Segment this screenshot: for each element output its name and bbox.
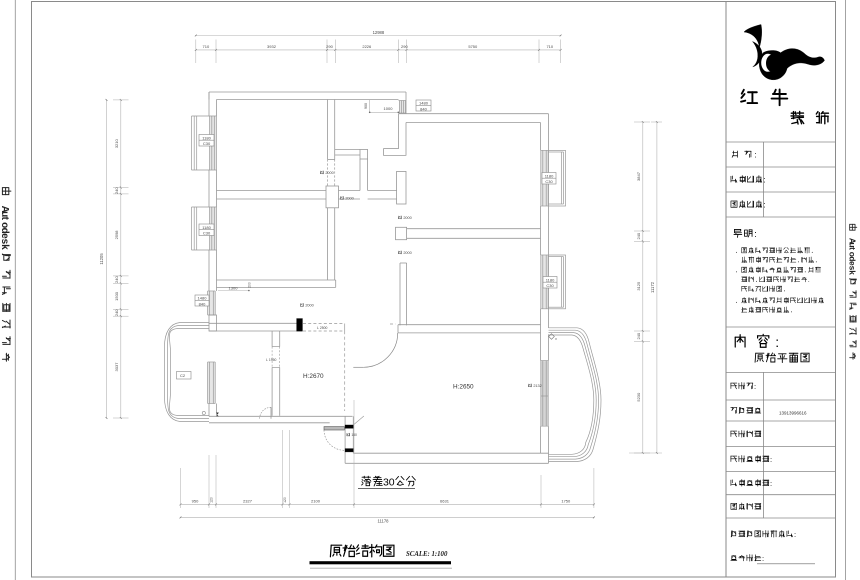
svg-text:L: L xyxy=(317,326,319,330)
svg-text:C30: C30 xyxy=(545,179,553,184)
svg-text:710: 710 xyxy=(546,44,553,49)
svg-text:0: 0 xyxy=(410,216,412,220)
svg-text:1000: 1000 xyxy=(384,106,394,111)
svg-text::: : xyxy=(794,530,796,539)
svg-text:1480: 1480 xyxy=(419,101,429,106)
svg-text:240: 240 xyxy=(114,275,119,282)
svg-text:k: k xyxy=(0,244,10,250)
svg-text::: : xyxy=(770,479,772,488)
svg-text:2327: 2327 xyxy=(243,499,253,504)
svg-text:240: 240 xyxy=(636,232,641,239)
svg-text:1500: 1500 xyxy=(114,291,119,301)
svg-text:950: 950 xyxy=(192,499,199,504)
svg-text:290: 290 xyxy=(401,44,408,49)
svg-text:C30: C30 xyxy=(546,283,554,288)
svg-text:710: 710 xyxy=(203,44,210,49)
svg-text:2598: 2598 xyxy=(114,230,119,240)
svg-text:1180: 1180 xyxy=(546,277,555,282)
svg-text:t: t xyxy=(848,247,858,250)
svg-text:0: 0 xyxy=(355,433,357,437)
svg-text:120: 120 xyxy=(210,497,214,503)
svg-text:11205: 11205 xyxy=(99,253,104,265)
svg-text::: : xyxy=(775,334,779,350)
svg-text:0: 0 xyxy=(352,197,354,201)
svg-text:2100: 2100 xyxy=(311,499,321,504)
svg-text:200: 200 xyxy=(248,282,252,288)
svg-text:3847: 3847 xyxy=(636,171,641,181)
svg-text:0: 0 xyxy=(312,304,314,308)
svg-text:0: 0 xyxy=(410,251,412,255)
svg-text::: : xyxy=(763,176,765,185)
svg-text:3210: 3210 xyxy=(114,138,119,148)
svg-text:H:2670: H:2670 xyxy=(303,373,324,380)
svg-text::: : xyxy=(754,382,756,391)
svg-text:240: 240 xyxy=(114,309,119,316)
svg-text:840: 840 xyxy=(420,106,427,111)
svg-text:C2: C2 xyxy=(180,373,186,378)
svg-text:.: . xyxy=(808,277,810,284)
svg-text:1180: 1180 xyxy=(202,225,211,230)
svg-text:3037: 3037 xyxy=(114,362,119,372)
svg-text:1480: 1480 xyxy=(198,296,208,301)
svg-text:13913996616: 13913996616 xyxy=(779,410,807,415)
svg-text:11178: 11178 xyxy=(377,518,389,523)
svg-text:C30: C30 xyxy=(203,231,211,236)
svg-text:240: 240 xyxy=(636,332,641,339)
svg-text:120: 120 xyxy=(283,497,287,503)
svg-text:H:2650: H:2650 xyxy=(453,384,474,391)
svg-text:0: 0 xyxy=(332,171,334,175)
svg-text:290: 290 xyxy=(326,44,333,49)
svg-text:900: 900 xyxy=(364,103,368,109)
svg-text:1180: 1180 xyxy=(545,173,554,178)
svg-text:3932: 3932 xyxy=(267,44,277,49)
svg-text:1300: 1300 xyxy=(229,285,239,290)
svg-text::: : xyxy=(754,151,756,160)
svg-text::: : xyxy=(770,455,772,464)
svg-text:1750: 1750 xyxy=(561,499,571,504)
svg-text:12988: 12988 xyxy=(373,30,385,35)
svg-text:2226: 2226 xyxy=(362,44,372,49)
svg-text:0: 0 xyxy=(326,326,328,330)
svg-text:11172: 11172 xyxy=(650,281,655,293)
svg-text:240: 240 xyxy=(114,187,119,194)
svg-text::: : xyxy=(763,201,765,210)
svg-text:3125: 3125 xyxy=(636,281,641,291)
svg-text:k: k xyxy=(848,270,858,275)
svg-text:0: 0 xyxy=(389,477,395,489)
svg-text:1180: 1180 xyxy=(202,135,211,140)
svg-text:SCALE: 1:100: SCALE: 1:100 xyxy=(406,551,448,558)
svg-text::: : xyxy=(762,554,764,563)
svg-text:840: 840 xyxy=(199,301,206,306)
svg-text:C30: C30 xyxy=(203,141,211,146)
svg-text:5230: 5230 xyxy=(636,392,641,402)
svg-text::: : xyxy=(754,229,757,239)
svg-text:0: 0 xyxy=(275,358,277,362)
svg-text:L: L xyxy=(266,358,268,362)
svg-text:5750: 5750 xyxy=(468,44,478,49)
svg-text:2: 2 xyxy=(540,384,542,388)
svg-text:6631: 6631 xyxy=(440,499,450,504)
